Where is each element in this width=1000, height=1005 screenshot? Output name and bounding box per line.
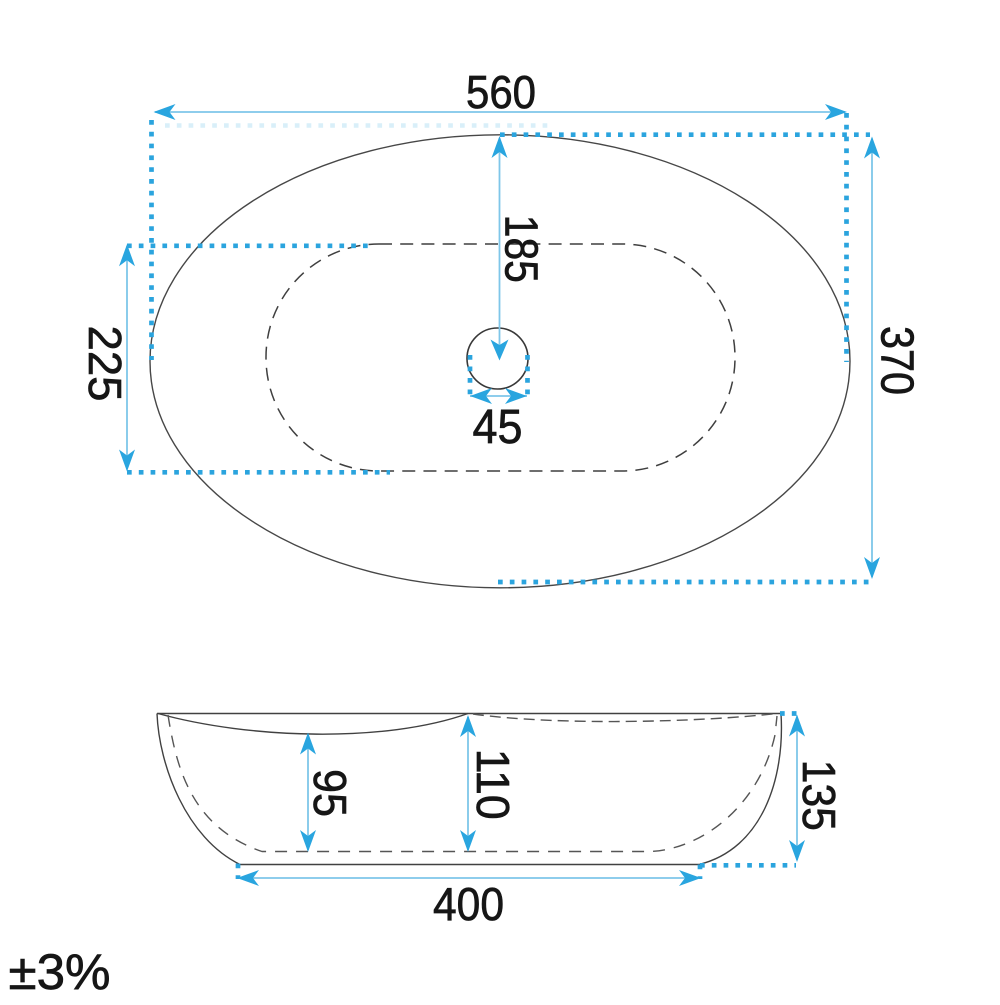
- svg-text:110: 110: [467, 749, 519, 820]
- svg-text:400: 400: [433, 878, 504, 930]
- svg-text:225: 225: [79, 326, 131, 402]
- svg-text:±3%: ±3%: [9, 944, 111, 1000]
- svg-text:135: 135: [793, 760, 845, 831]
- svg-text:370: 370: [872, 326, 924, 395]
- svg-text:95: 95: [304, 769, 356, 817]
- svg-text:185: 185: [496, 215, 548, 283]
- svg-text:560: 560: [466, 66, 536, 118]
- svg-text:45: 45: [473, 400, 523, 454]
